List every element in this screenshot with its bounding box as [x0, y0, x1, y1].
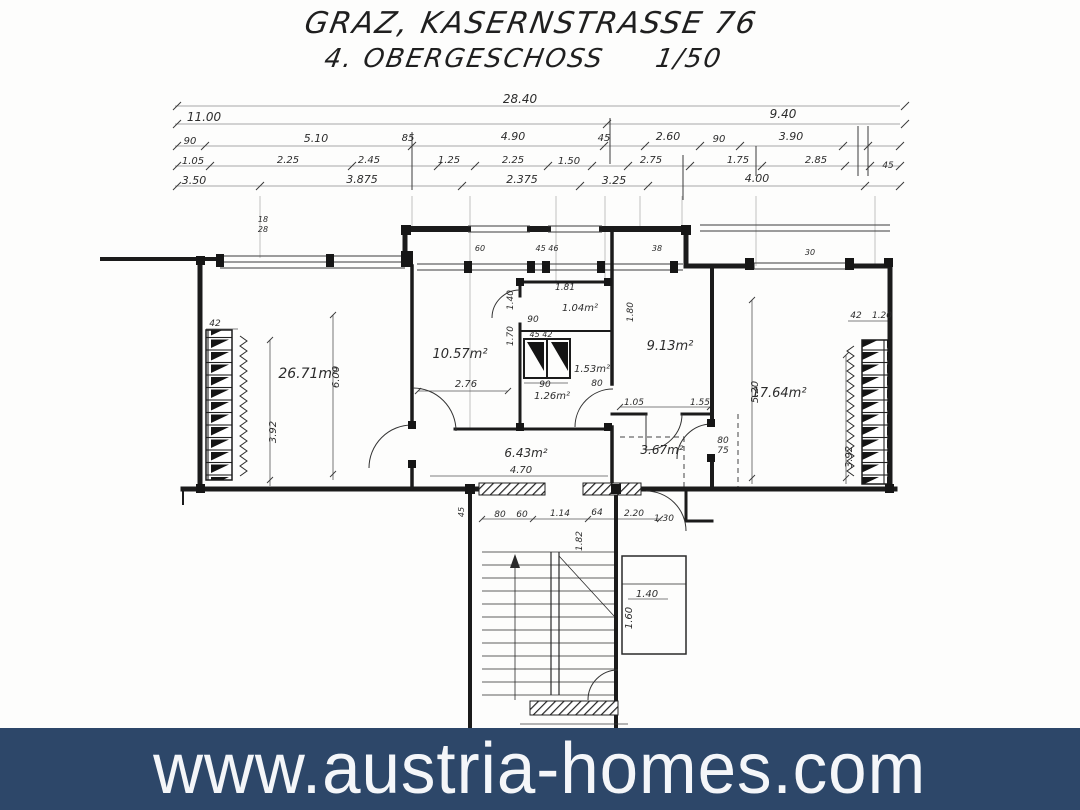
dim: 4.00: [745, 172, 770, 185]
dim: 85: [402, 133, 415, 144]
dim: 60: [516, 510, 528, 520]
dim: 2.375: [506, 173, 538, 186]
dim: 45: [598, 133, 611, 144]
dim: 3.25: [602, 174, 627, 187]
dim: 6.00: [331, 366, 342, 388]
shaft: [524, 339, 570, 378]
dimension-tick-marks: [173, 102, 909, 200]
dim: 2.45: [358, 155, 380, 166]
radiator-left-squiggle: [240, 336, 247, 476]
room-area-shaft: 1.53m²: [574, 364, 610, 375]
dim: 90: [184, 136, 197, 147]
dim: 2.25: [277, 155, 299, 166]
dim: 2.85: [805, 155, 827, 166]
dim: 1.55: [690, 398, 710, 408]
dim: 1.30: [654, 514, 674, 524]
footer-banner: www.austria-homes.com: [0, 728, 1080, 810]
dim: 3.90: [779, 130, 804, 143]
dim: 1.60: [624, 607, 635, 629]
dim: 80: [494, 510, 506, 520]
dim: 80: [717, 436, 729, 446]
dim: 1.40: [506, 290, 516, 310]
dim: 1.20: [872, 311, 892, 321]
dim: 60: [475, 244, 485, 253]
dim: 1.40: [636, 589, 658, 600]
room-area-bedroom: 9.13m²: [647, 339, 694, 354]
stairwell-walls: [470, 489, 616, 728]
staircase: [482, 552, 614, 700]
room-area-vestibule: 1.26m²: [534, 391, 570, 402]
plan-title-location: GRAZ, KASERNSTRASSE 76: [302, 6, 760, 41]
dim: 1.05: [624, 398, 644, 408]
dim: 80: [591, 379, 603, 389]
dim: 38: [652, 244, 662, 253]
dim: 75: [717, 446, 729, 456]
dim: 1.70: [506, 326, 516, 346]
dim: 64: [591, 508, 603, 518]
dim-left-wing: 11.00: [187, 110, 222, 124]
room-area-bath: 3.67m²: [640, 443, 683, 457]
landing-room: [622, 556, 686, 654]
dim: 42: [209, 319, 221, 329]
dim: 1.14: [550, 509, 570, 519]
plan-title: GRAZ, KASERNSTRASSE 76 4. OBERGESCHOSS1/…: [296, 6, 760, 74]
dim-total-width: 28.40: [503, 92, 538, 106]
dim: 90: [527, 315, 539, 325]
room-area-hall: 6.43m²: [504, 446, 547, 460]
dim: 3.92: [844, 446, 855, 468]
room-area-wc: 1.04m²: [562, 303, 598, 314]
dim: 42: [850, 311, 862, 321]
plan-title-floor: 4. OBERGESCHOSS: [322, 44, 606, 74]
dim: 28: [258, 225, 268, 234]
dim: 1.75: [727, 155, 749, 166]
plan-title-scale: 1/50: [653, 44, 725, 74]
dim: 2.75: [640, 155, 662, 166]
dim: 2.76: [455, 379, 477, 390]
interior-walls: [412, 229, 712, 521]
dim: 1.81: [555, 283, 575, 293]
dim: 2.25: [502, 155, 524, 166]
radiator-left: [206, 330, 247, 480]
plan-title-floor-line: 4. OBERGESCHOSS1/50: [322, 44, 753, 74]
dim: 1.50: [558, 156, 580, 167]
dim: 45 42: [530, 330, 553, 339]
dim-right-wing: 9.40: [770, 107, 797, 121]
dim: 5.10: [304, 132, 329, 145]
dim: 30: [805, 248, 815, 257]
dim: 2.20: [624, 509, 644, 519]
dim: 90: [539, 380, 551, 390]
dim: 3.875: [346, 173, 378, 186]
banner-url: www.austria-homes.com: [153, 728, 926, 810]
dim: 18: [258, 215, 268, 224]
floor-plan: 28.4011.009.40905.10854.90452.60903.901.…: [0, 0, 1080, 810]
room-area-living: 26.71m²: [278, 366, 338, 382]
dim: 1.80: [626, 302, 636, 322]
dim: 3.92: [268, 421, 279, 443]
interior-dimension-lines: [206, 300, 892, 599]
dim: 2.60: [656, 130, 681, 143]
room-area-cabinet: 10.57m²: [432, 347, 487, 362]
dim: 90: [713, 134, 726, 145]
dim: 45: [882, 161, 894, 171]
dim: 4.90: [501, 130, 526, 143]
dim: 4.70: [510, 465, 532, 476]
dim: 45: [457, 507, 466, 517]
dim: 3.50: [182, 174, 207, 187]
dim: 45 46: [536, 244, 559, 253]
dim: 1.82: [575, 531, 585, 551]
dim: 1.05: [182, 156, 204, 167]
dim: 5.20: [750, 381, 761, 403]
plan-labels: 28.4011.009.40905.10854.90452.60903.901.…: [182, 92, 894, 629]
dim: 1.25: [438, 155, 460, 166]
